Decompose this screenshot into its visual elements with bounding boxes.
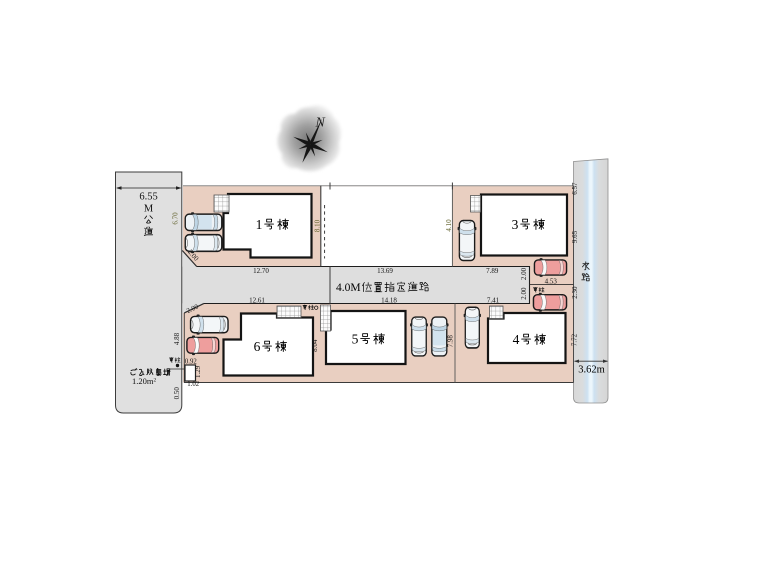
svg-text:0.50: 0.50 (173, 387, 181, 400)
svg-text:1: 1 (256, 217, 263, 232)
svg-text:8.10: 8.10 (314, 219, 322, 232)
svg-text:7.41: 7.41 (487, 297, 500, 305)
svg-text:9.65: 9.65 (571, 230, 579, 243)
svg-text:2.30: 2.30 (571, 286, 579, 299)
svg-text:6.57: 6.57 (571, 182, 579, 195)
svg-text:2.00: 2.00 (520, 287, 528, 300)
svg-text:7.98: 7.98 (446, 335, 454, 348)
svg-text:4.53: 4.53 (545, 277, 558, 285)
svg-text:7.72: 7.72 (570, 333, 578, 346)
svg-text:N: N (315, 116, 326, 131)
svg-text:4.0M: 4.0M (336, 282, 361, 294)
svg-text:3: 3 (512, 217, 519, 232)
svg-text:6.70: 6.70 (171, 212, 179, 225)
svg-text:6.55: 6.55 (139, 192, 157, 203)
svg-text:4.10: 4.10 (445, 219, 453, 232)
svg-text:5: 5 (352, 332, 359, 347)
svg-text:7.89: 7.89 (486, 267, 499, 275)
svg-text:14.18: 14.18 (381, 297, 397, 305)
svg-text:6: 6 (254, 339, 261, 354)
svg-text:13.69: 13.69 (377, 267, 393, 275)
svg-text:4.88: 4.88 (173, 332, 181, 345)
svg-text:1.20m2: 1.20m2 (132, 376, 157, 386)
svg-text:0.92: 0.92 (185, 359, 197, 366)
svg-text:12.70: 12.70 (253, 267, 269, 275)
svg-text:1.29: 1.29 (194, 365, 202, 378)
svg-text:8.04: 8.04 (311, 339, 319, 352)
svg-text:1.02: 1.02 (187, 381, 199, 388)
svg-text:2.00: 2.00 (520, 267, 528, 280)
svg-text:3.62m: 3.62m (578, 365, 605, 376)
svg-text:12.61: 12.61 (249, 297, 265, 305)
svg-text:4: 4 (513, 332, 520, 347)
svg-text:M: M (144, 204, 154, 215)
